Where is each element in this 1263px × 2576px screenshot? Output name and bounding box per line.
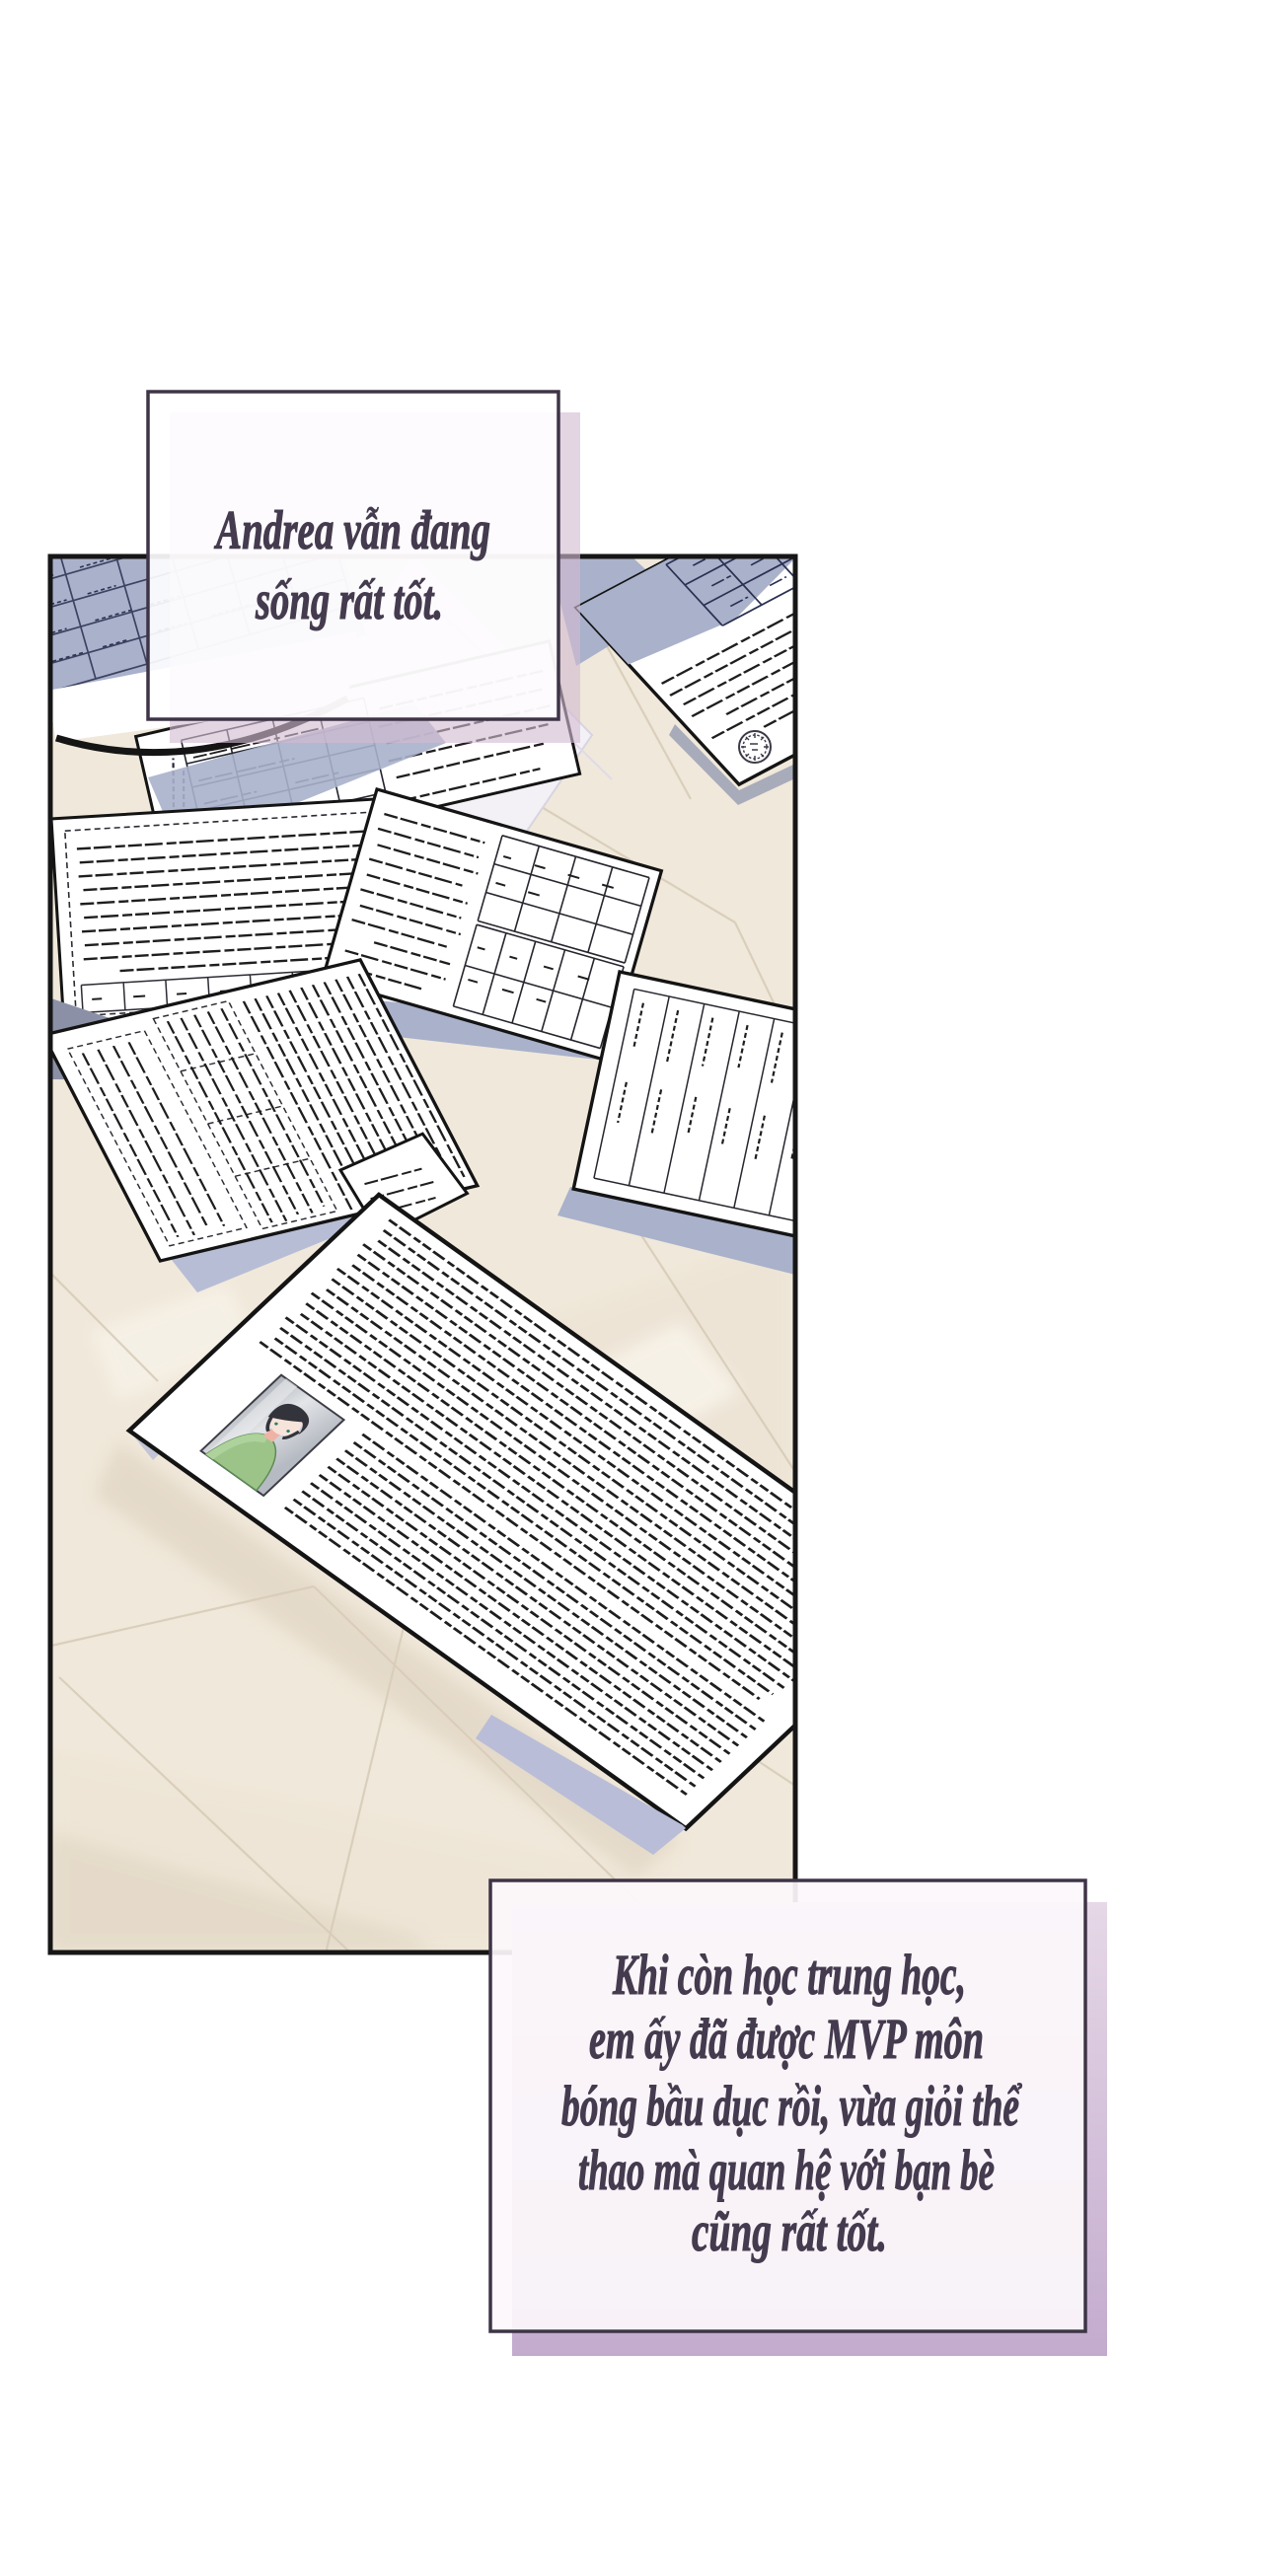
svg-text:Khi còn học trung học,: Khi còn học trung học, bbox=[612, 1943, 966, 2007]
svg-text:em ấy đã được MVP môn: em ấy đã được MVP môn bbox=[589, 2007, 984, 2071]
svg-text:bóng bầu dục rồi, vừa giỏi thể: bóng bầu dục rồi, vừa giỏi thể bbox=[561, 2074, 1022, 2138]
svg-text:sống rất tốt.: sống rất tốt. bbox=[255, 570, 443, 631]
svg-text:cũng rất tốt.: cũng rất tốt. bbox=[692, 2199, 887, 2263]
svg-text:thao mà quan hệ với bạn bè: thao mà quan hệ với bạn bè bbox=[578, 2138, 995, 2202]
svg-text:Andrea vẫn đang: Andrea vẫn đang bbox=[214, 500, 490, 561]
